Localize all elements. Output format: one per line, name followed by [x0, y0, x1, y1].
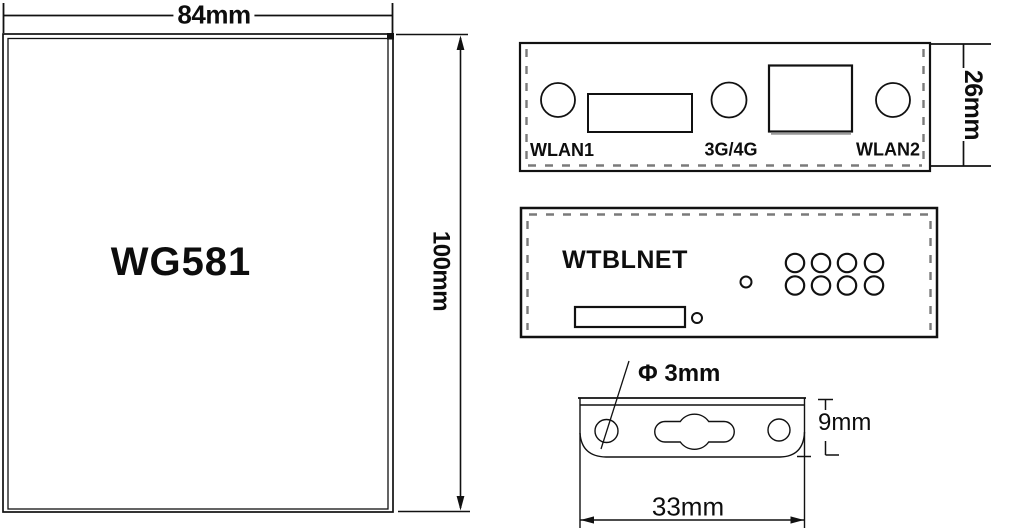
- wlan2-antenna-connector: [876, 83, 910, 117]
- sim-card-slot: [575, 307, 685, 327]
- front-view-corner-mark: [387, 33, 394, 40]
- width-dim-label-33mm: 33mm: [652, 493, 724, 520]
- port-label-3g4g: 3G/4G: [704, 141, 757, 160]
- mechanical-drawing-canvas: 84mm WG581 100mm 26mm WLAN1 3G/4G WLAN2 …: [0, 0, 1016, 528]
- arrow-up: [457, 36, 465, 51]
- height-dim-label-26mm: 26mm: [960, 70, 986, 140]
- model-label: WG581: [111, 241, 252, 283]
- serial-port-opening: [588, 94, 692, 132]
- sim-eject-pinhole: [692, 313, 702, 323]
- reset-pinhole: [741, 277, 752, 288]
- bracket-bottom-edge: [580, 432, 805, 457]
- cellular-antenna-connector: [712, 83, 747, 118]
- ethernet-port-opening: [769, 66, 852, 132]
- bracket-right-screw-hole: [768, 419, 790, 441]
- wlan1-antenna-connector: [541, 83, 575, 117]
- brand-label-wtblnet: WTBLNET: [562, 247, 688, 273]
- hole-diameter-label: Φ 3mm: [638, 361, 720, 386]
- arrow-right: [791, 516, 805, 523]
- width-dim-label-84mm: 84mm: [173, 1, 254, 28]
- arrow-down: [457, 496, 465, 511]
- height-dim-label-100mm: 100mm: [428, 231, 453, 311]
- width-dim-text: 84mm: [173, 0, 254, 29]
- port-label-wlan2: WLAN2: [856, 141, 920, 160]
- arrow-left: [581, 516, 595, 523]
- port-label-wlan1: WLAN1: [530, 141, 594, 160]
- bracket-center-keyhole-slot: [655, 414, 735, 449]
- vent-holes: [786, 254, 883, 295]
- height-dim-label-9mm: 9mm: [818, 410, 871, 435]
